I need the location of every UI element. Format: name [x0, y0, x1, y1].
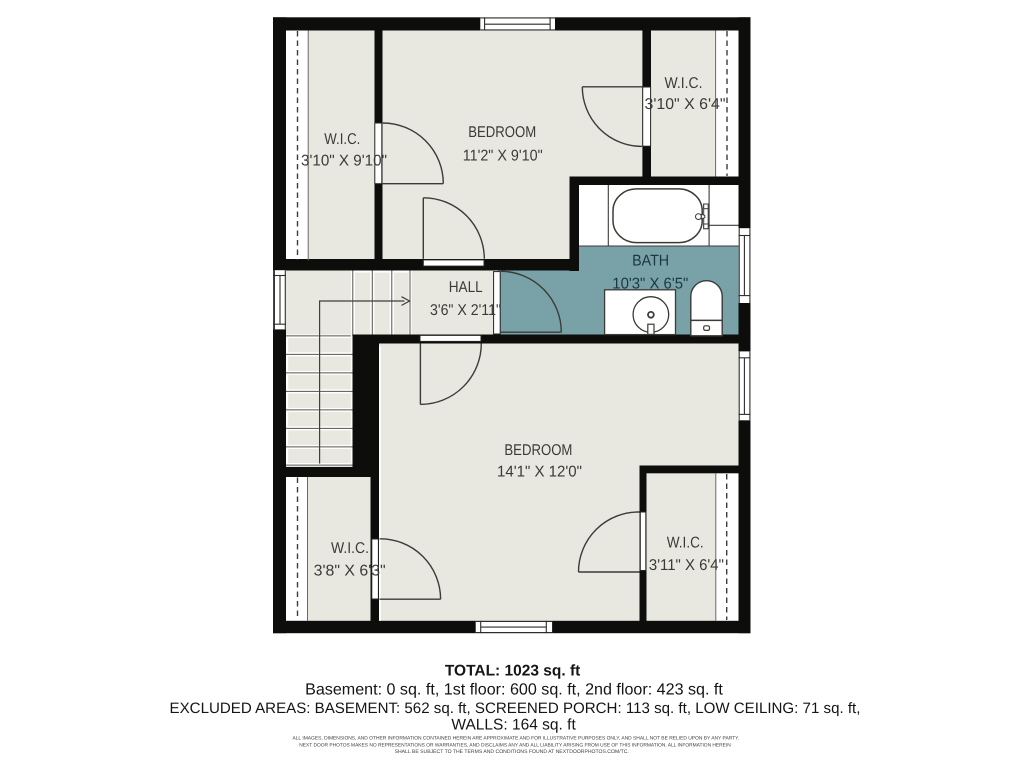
svg-text:3'8" X 6'3": 3'8" X 6'3": [314, 563, 386, 580]
svg-text:HALL: HALL: [449, 279, 483, 296]
svg-text:SHALL BE SUBJECT TO THE TERMS: SHALL BE SUBJECT TO THE TERMS AND CONDIT…: [395, 749, 629, 755]
svg-text:3'10" X 9'10": 3'10" X 9'10": [301, 153, 387, 170]
svg-text:ALL IMAGES, DIMENSIONS, AND OT: ALL IMAGES, DIMENSIONS, AND OTHER INFORM…: [292, 735, 739, 741]
svg-text:EXCLUDED AREAS: BASEMENT: 562: EXCLUDED AREAS: BASEMENT: 562 sq. ft, SC…: [170, 700, 861, 717]
svg-text:W.I.C.: W.I.C.: [667, 535, 704, 552]
svg-text:W.I.C.: W.I.C.: [331, 540, 369, 557]
svg-text:WALLS: 164 sq. ft: WALLS: 164 sq. ft: [451, 717, 576, 734]
svg-text:W.I.C.: W.I.C.: [324, 131, 360, 148]
svg-text:10'3" X 6'5": 10'3" X 6'5": [612, 275, 688, 292]
svg-text:11'2" X 9'10": 11'2" X 9'10": [463, 147, 543, 164]
svg-text:NEXT DOOR PHOTOS MAKES NO REPR: NEXT DOOR PHOTOS MAKES NO REPRESENTATION…: [299, 742, 731, 748]
svg-text:14'1" X 12'0": 14'1" X 12'0": [497, 464, 582, 481]
svg-text:3'11" X 6'4": 3'11" X 6'4": [649, 557, 724, 574]
svg-text:3'10" X 6'4": 3'10" X 6'4": [645, 96, 726, 113]
svg-text:BATH: BATH: [632, 252, 669, 269]
svg-text:Basement: 0 sq. ft, 1st floor:: Basement: 0 sq. ft, 1st floor: 600 sq. f…: [305, 681, 723, 699]
svg-text:W.I.C.: W.I.C.: [665, 75, 703, 92]
svg-text:TOTAL: 1023 sq. ft: TOTAL: 1023 sq. ft: [445, 662, 581, 679]
svg-text:3'6" X 2'11": 3'6" X 2'11": [430, 302, 501, 319]
svg-text:BEDROOM: BEDROOM: [468, 124, 536, 141]
svg-text:BEDROOM: BEDROOM: [504, 442, 572, 459]
